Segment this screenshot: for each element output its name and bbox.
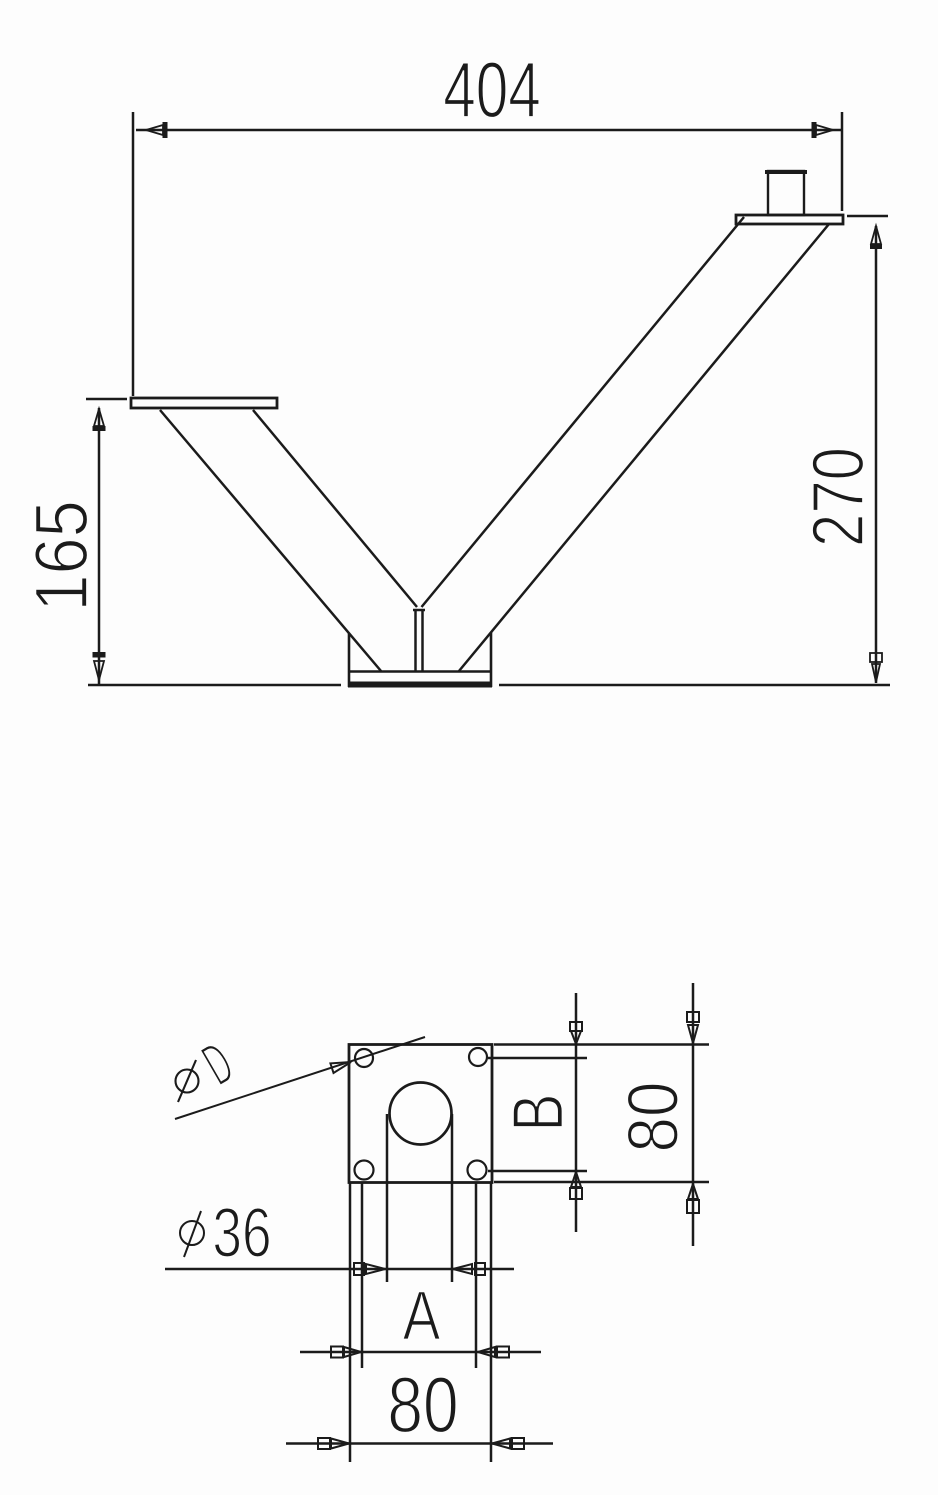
svg-text:80: 80 (614, 1082, 694, 1153)
svg-text:270: 270 (798, 447, 879, 547)
svg-text:36: 36 (212, 1194, 271, 1272)
svg-text:B: B (499, 1094, 579, 1132)
svg-text:404: 404 (443, 45, 541, 134)
svg-text:165: 165 (19, 500, 103, 611)
svg-text:D: D (192, 1029, 244, 1098)
svg-text:A: A (403, 1277, 441, 1355)
svg-text:80: 80 (387, 1360, 458, 1449)
